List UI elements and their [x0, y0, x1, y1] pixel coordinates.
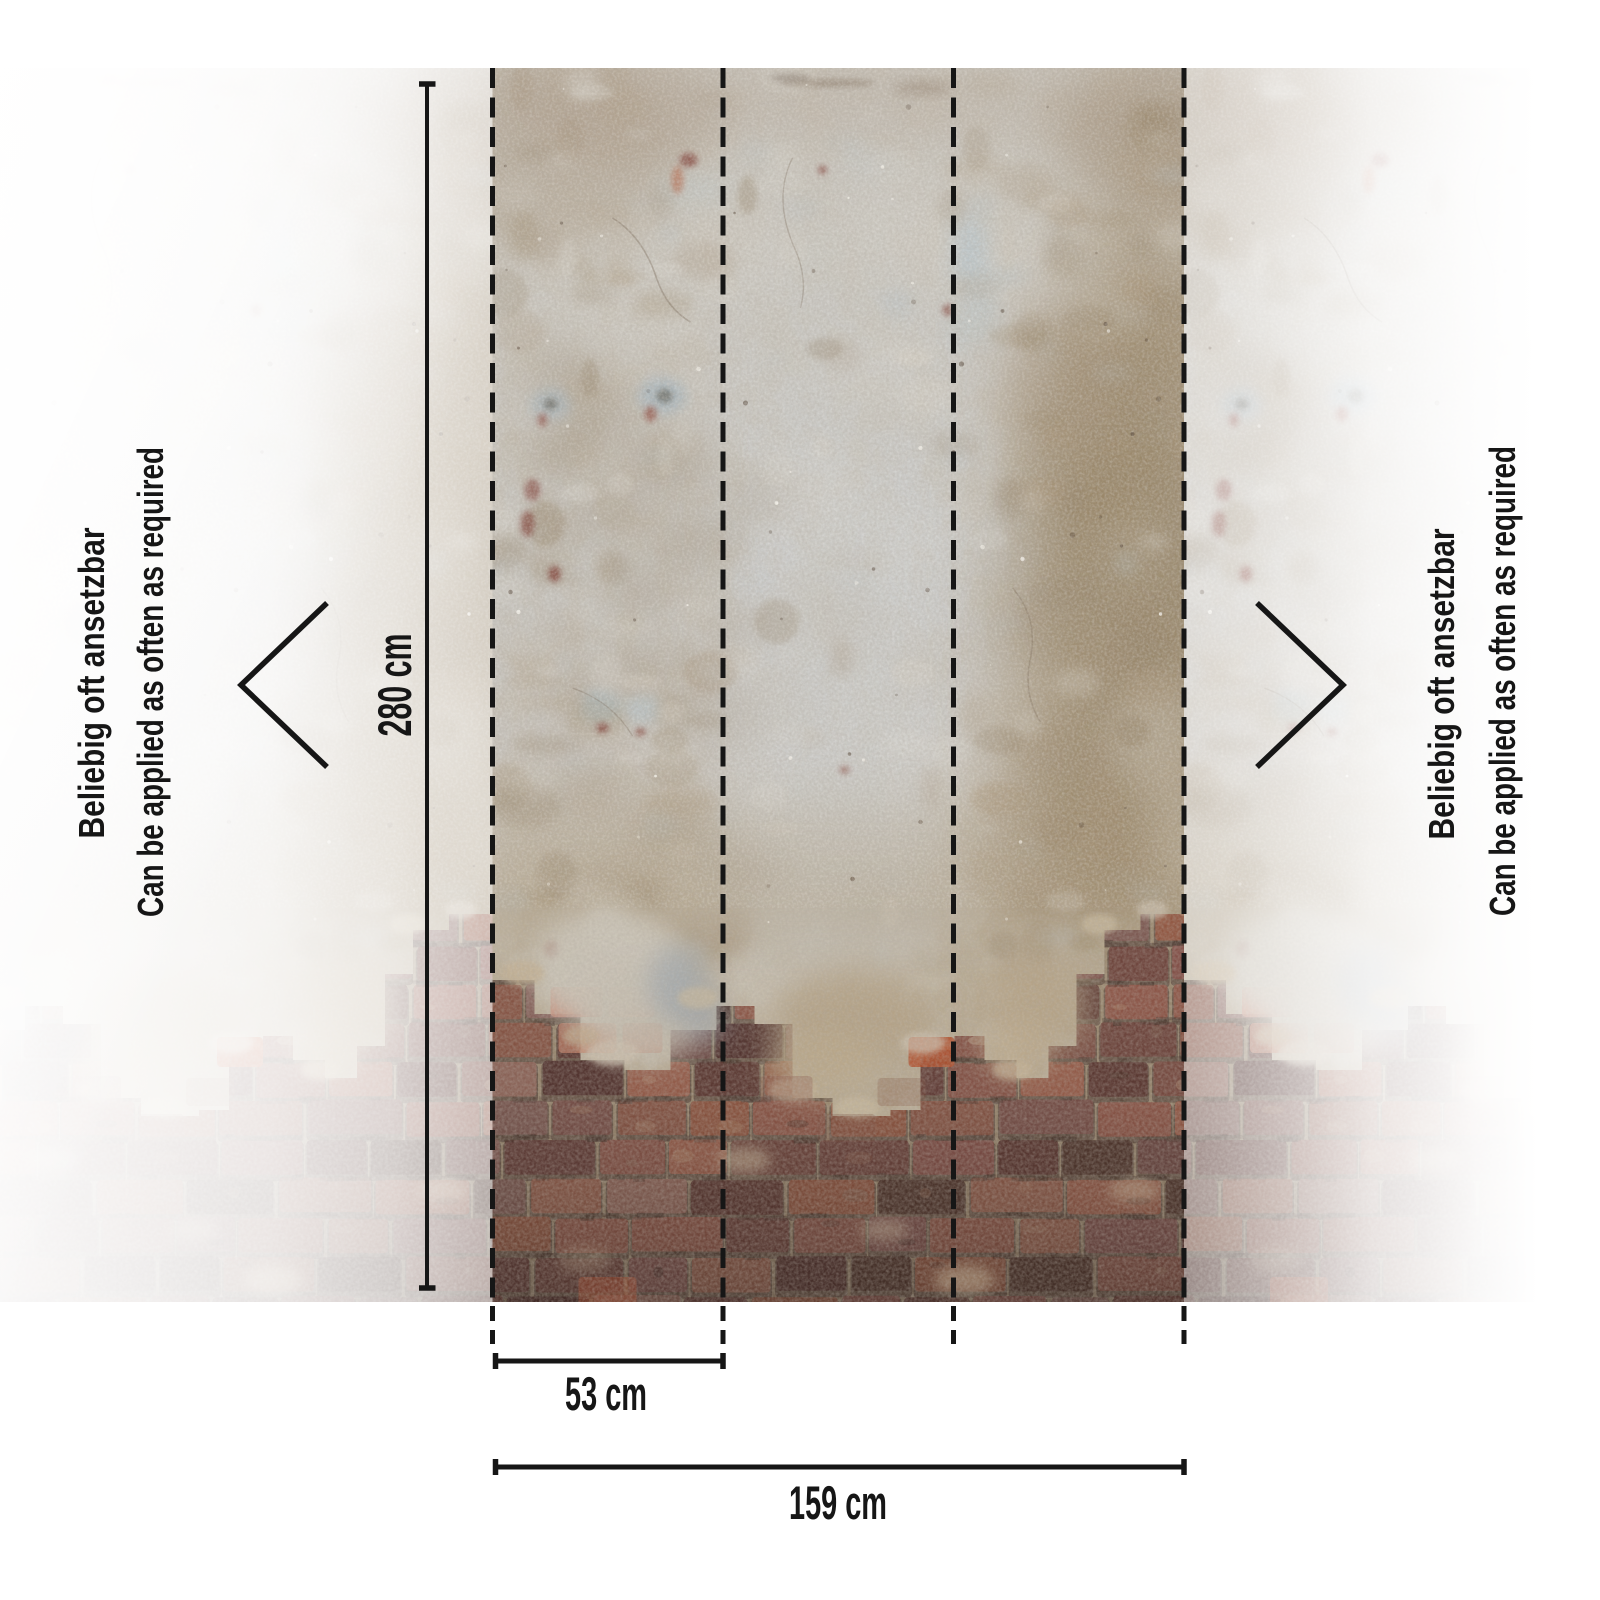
svg-text:Beliebig oft ansetzbar: Beliebig oft ansetzbar: [1421, 529, 1462, 840]
svg-text:159 cm: 159 cm: [789, 1476, 887, 1529]
svg-text:Beliebig oft ansetzbar: Beliebig oft ansetzbar: [71, 528, 112, 839]
svg-text:280 cm: 280 cm: [368, 634, 421, 737]
svg-text:53 cm: 53 cm: [565, 1367, 647, 1420]
svg-text:Can be applied as often as req: Can be applied as often as required: [130, 447, 171, 917]
svg-text:Can be applied as often as req: Can be applied as often as required: [1482, 446, 1523, 916]
